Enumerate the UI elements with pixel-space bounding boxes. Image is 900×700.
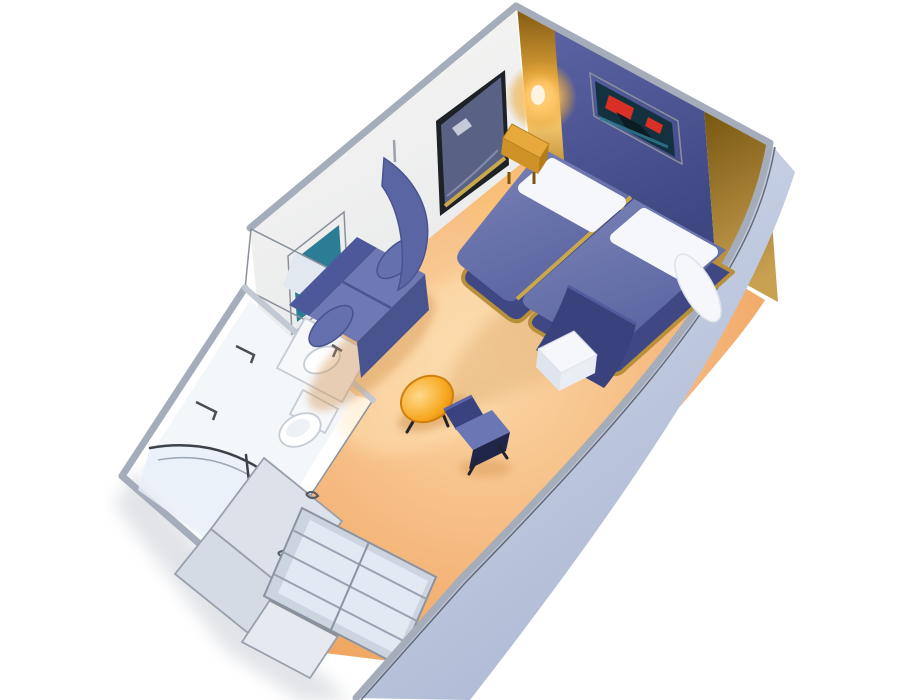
curtain-rod bbox=[394, 140, 395, 162]
lamp-core bbox=[531, 85, 545, 105]
chair-shadow bbox=[459, 459, 511, 477]
wall-lamp bbox=[505, 61, 577, 133]
stateroom-scene bbox=[0, 0, 900, 700]
